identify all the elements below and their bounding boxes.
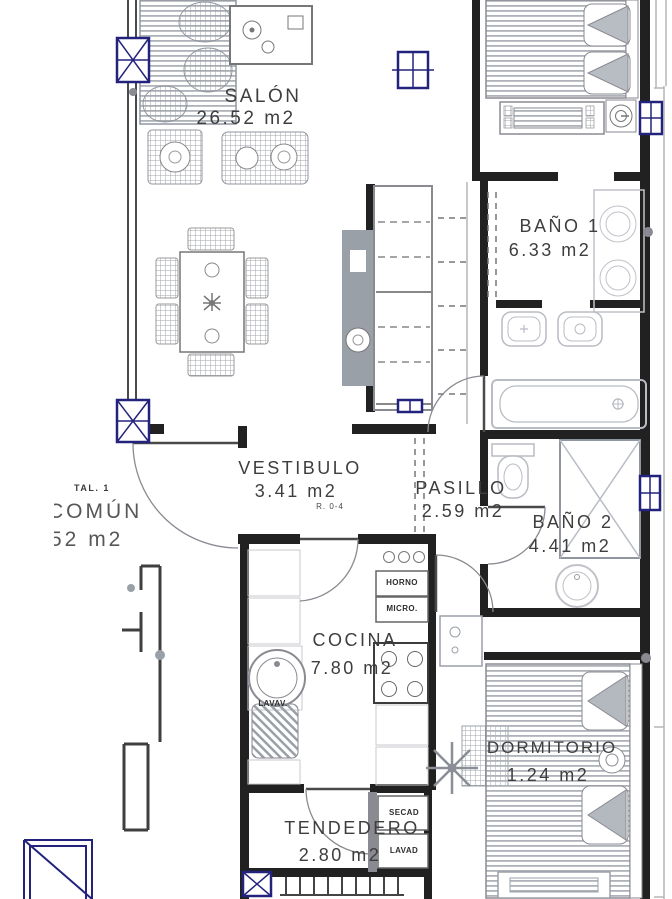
floor-plan: SALÓN 26.52 m2 BAÑO 1 6.33 m2 VESTIBULO … [0,0,672,899]
toilet-icon [558,312,602,346]
comun-area: 52 m2 [50,528,123,552]
vestibulo-label: VESTIBULO [238,458,362,479]
crop-mask [0,470,54,580]
dormitorio-area: 1.24 m2 [507,765,590,786]
pasillo-area: 2.59 m2 [422,501,505,522]
tv-cabinet-icon [342,230,374,386]
tendedero-area: 2.80 m2 [299,845,382,866]
bano1-label: BAÑO 1 [519,216,600,237]
dormitorio-label: DORMITORIO [487,738,617,758]
hob-knobs-icon [384,552,425,563]
cocina-label: COCINA [312,630,397,651]
armchair-icon [148,130,202,184]
window-icon [398,400,422,412]
secad-label: SECAD [389,808,419,817]
salon-area: 26.52 m2 [196,108,295,130]
comun-label: COMÚN [48,500,142,524]
fixture-symbol [606,100,636,132]
window-icon [640,102,662,134]
lavav-label: LAVAV. [258,699,287,708]
bench-icon [500,102,604,134]
dishwasher-icon [252,704,298,758]
vestibulo-note: R. 0-4 [316,502,344,511]
cocina-area: 7.80 m2 [311,658,394,679]
bano2-label: BAÑO 2 [532,512,613,533]
nightstand-icon [440,616,482,666]
dining-table-icon [156,228,268,376]
sideboard-icon [230,6,312,64]
kitchen-sink-icon [249,650,305,706]
salon-label: SALÓN [225,86,302,108]
window-icon [392,52,434,88]
window-icon [640,476,660,510]
comun-portal-label: TAL. 1 [74,483,110,493]
horno-label: HORNO [386,578,418,587]
wardrobe-icon [374,186,432,410]
micro-label: MICRO. [386,604,417,613]
bano1-area: 6.33 m2 [509,240,592,261]
coffee-table-icon [222,132,308,184]
common-zone-walls [122,566,165,830]
sofa-icon [140,0,236,124]
portal-blue-outline [24,840,92,899]
bidet-icon [502,312,546,346]
bed-icon [486,0,638,98]
window-icon [243,872,271,896]
washbasin-icon [594,190,644,312]
window-icon [117,400,149,442]
bano2-area: 4.41 m2 [529,536,612,557]
vestibulo-area: 3.41 m2 [255,481,338,502]
bathtub-icon [492,380,646,428]
tendedero-label: TENDEDERO [284,818,420,839]
sink-round-icon [556,565,598,607]
pasillo-label: PASILLO [415,478,506,499]
lavad-label: LAVAD [390,846,418,855]
louver-icon [280,877,404,895]
window-icon [117,38,149,82]
